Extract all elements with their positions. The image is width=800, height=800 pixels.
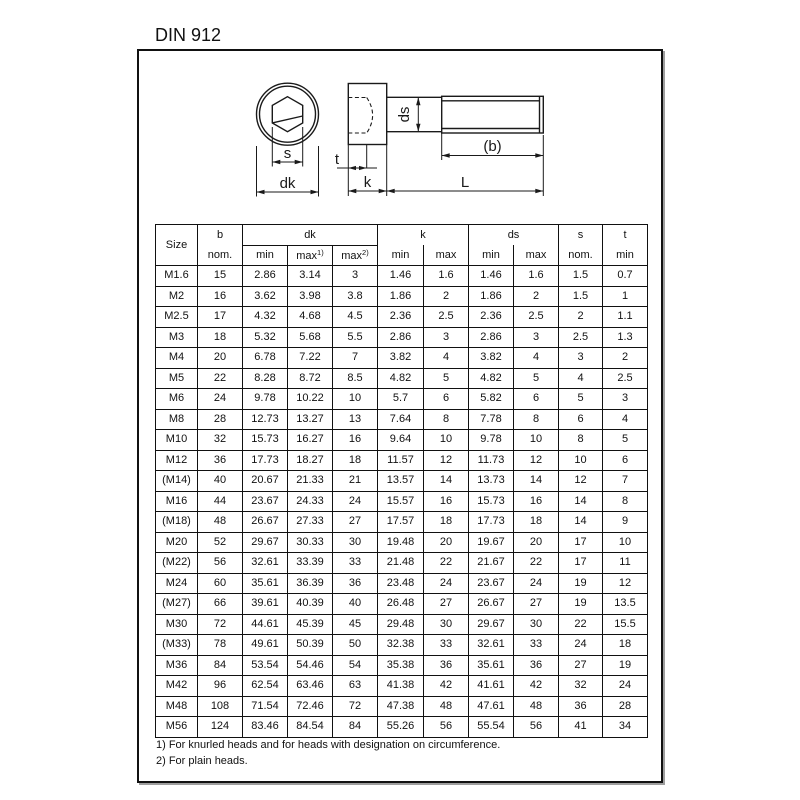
table-row: (M33)7849.6150.395032.383332.61332418: [156, 635, 648, 656]
table-cell: 1.46: [378, 266, 424, 287]
table-cell: 62.54: [243, 676, 288, 697]
table-cell: 32: [198, 430, 243, 451]
table-cell: M16: [156, 491, 198, 512]
col-header-dk: dk: [243, 225, 378, 246]
dim-label-k: k: [364, 174, 372, 191]
table-row: M164423.6724.332415.571615.7316148: [156, 491, 648, 512]
table-cell: 16: [333, 430, 378, 451]
table-cell: 1.86: [378, 286, 424, 307]
col-header-k: k: [378, 225, 469, 246]
table-cell: 63.46: [288, 676, 333, 697]
hex-socket-shape: [272, 97, 302, 132]
table-cell: 26.67: [243, 512, 288, 533]
table-cell: 1.3: [603, 327, 648, 348]
dim-label-L: L: [461, 174, 469, 191]
table-cell: 35.61: [243, 573, 288, 594]
table-cell: 2.5: [424, 307, 469, 328]
table-cell: 2.86: [378, 327, 424, 348]
table-cell: 3.82: [378, 348, 424, 369]
table-cell: 1.46: [469, 266, 514, 287]
table-cell: 8: [559, 430, 603, 451]
table-cell: 56: [514, 717, 559, 738]
table-cell: 27: [333, 512, 378, 533]
table-cell: 4.82: [378, 368, 424, 389]
col-header-dk-min: min: [243, 245, 288, 266]
table-cell: 60: [198, 573, 243, 594]
max1-sup: 1): [317, 248, 324, 257]
col-header-size: Size: [156, 225, 198, 266]
table-cell: 18: [333, 450, 378, 471]
table-cell: 12: [424, 450, 469, 471]
table-cell: 17.57: [378, 512, 424, 533]
table-cell: 3.98: [288, 286, 333, 307]
table-cell: 33: [333, 553, 378, 574]
table-row: M307244.6145.394529.483029.67302215.5: [156, 614, 648, 635]
table-cell: 108: [198, 696, 243, 717]
table-cell: 71.54: [243, 696, 288, 717]
table-cell: 2.36: [469, 307, 514, 328]
table-cell: 2: [559, 307, 603, 328]
table-cell: 3: [424, 327, 469, 348]
table-cell: 9.64: [378, 430, 424, 451]
col-header-s: snom.: [559, 225, 603, 266]
table-cell: 45.39: [288, 614, 333, 635]
table-cell: 36: [333, 573, 378, 594]
table-cell: M2.5: [156, 307, 198, 328]
table-cell: 24: [514, 573, 559, 594]
table-cell: 11.73: [469, 450, 514, 471]
table-row: M3185.325.685.52.8632.8632.51.3: [156, 327, 648, 348]
table-cell: 4.82: [469, 368, 514, 389]
table-cell: 19.48: [378, 532, 424, 553]
max2-sup: 2): [362, 248, 369, 257]
table-cell: 5.82: [469, 389, 514, 410]
table-cell: 1.86: [469, 286, 514, 307]
table-cell: M3: [156, 327, 198, 348]
table-cell: 17.73: [469, 512, 514, 533]
table-cell: 15: [198, 266, 243, 287]
screw-technical-drawing: s dk t k ds (b) L: [215, 58, 585, 208]
table-cell: 13.57: [378, 471, 424, 492]
table-cell: 30: [424, 614, 469, 635]
table-cell: 8.5: [333, 368, 378, 389]
table-cell: 2.5: [514, 307, 559, 328]
table-cell: 50: [333, 635, 378, 656]
table-row: (M18)4826.6727.332717.571817.7318149: [156, 512, 648, 533]
table-cell: M20: [156, 532, 198, 553]
table-cell: 5: [603, 430, 648, 451]
table-cell: (M27): [156, 594, 198, 615]
table-row: M103215.7316.27169.64109.781085: [156, 430, 648, 451]
table-cell: 42: [424, 676, 469, 697]
table-cell: M36: [156, 655, 198, 676]
table-row: M2.5174.324.684.52.362.52.362.521.1: [156, 307, 648, 328]
table-cell: 7.64: [378, 409, 424, 430]
table-cell: 72: [198, 614, 243, 635]
table-cell: 2.86: [243, 266, 288, 287]
table-cell: 6: [514, 389, 559, 410]
max2-label: max: [341, 250, 362, 262]
table-row: M5228.288.728.54.8254.82542.5: [156, 368, 648, 389]
thread-section: [442, 96, 544, 133]
table-cell: 39.61: [243, 594, 288, 615]
table-cell: 36: [198, 450, 243, 471]
table-cell: 11: [603, 553, 648, 574]
table-cell: 29.67: [243, 532, 288, 553]
col-header-b: bnom.: [198, 225, 243, 266]
table-cell: 47.61: [469, 696, 514, 717]
table-row: M82812.7313.27137.6487.78864: [156, 409, 648, 430]
table-cell: 35.38: [378, 655, 424, 676]
table-cell: 40.39: [288, 594, 333, 615]
table-cell: 21.48: [378, 553, 424, 574]
table-cell: 33.39: [288, 553, 333, 574]
col-header-t: tmin: [603, 225, 648, 266]
table-cell: 23.67: [243, 491, 288, 512]
table-cell: 72: [333, 696, 378, 717]
table-cell: 8: [424, 409, 469, 430]
footnotes: 1) For knurled heads and for heads with …: [156, 737, 500, 769]
table-cell: 9: [603, 512, 648, 533]
table-cell: 48: [514, 696, 559, 717]
table-cell: 17: [559, 553, 603, 574]
table-cell: 24: [559, 635, 603, 656]
table-cell: 20: [198, 348, 243, 369]
table-row: M368453.5454.465435.383635.61362719: [156, 655, 648, 676]
table-cell: 20.67: [243, 471, 288, 492]
table-cell: 30: [514, 614, 559, 635]
table-cell: 4: [559, 368, 603, 389]
table-cell: 27: [424, 594, 469, 615]
table-row: M2163.623.983.81.8621.8621.51: [156, 286, 648, 307]
table-cell: 17: [559, 532, 603, 553]
table-cell: 1.6: [424, 266, 469, 287]
table-cell: 14: [514, 471, 559, 492]
table-cell: 3: [333, 266, 378, 287]
max1-label: max: [296, 250, 317, 262]
hidden-socket-lines: [348, 98, 372, 134]
table-cell: 41.38: [378, 676, 424, 697]
table-cell: 22: [559, 614, 603, 635]
table-cell: 55.26: [378, 717, 424, 738]
table-cell: 4.5: [333, 307, 378, 328]
table-cell: 56: [198, 553, 243, 574]
table-cell: 23.67: [469, 573, 514, 594]
table-cell: 2: [603, 348, 648, 369]
table-cell: 10.22: [288, 389, 333, 410]
table-cell: 23.48: [378, 573, 424, 594]
table-cell: 3: [559, 348, 603, 369]
table-cell: 18.27: [288, 450, 333, 471]
col-header-ds: ds: [469, 225, 559, 246]
table-cell: 56: [424, 717, 469, 738]
dim-label-dk: dk: [280, 175, 296, 192]
col-header-dk-max2: max2): [333, 245, 378, 266]
table-cell: 6: [424, 389, 469, 410]
table-cell: 3: [514, 327, 559, 348]
table-cell: 15.73: [469, 491, 514, 512]
table-cell: 10: [603, 532, 648, 553]
table-cell: 10: [559, 450, 603, 471]
table-cell: 32.38: [378, 635, 424, 656]
table-cell: 2: [424, 286, 469, 307]
table-cell: 1.5: [559, 286, 603, 307]
table-row: M246035.6136.393623.482423.67241912: [156, 573, 648, 594]
table-cell: 12: [514, 450, 559, 471]
footnote-1: 1) For knurled heads and for heads with …: [156, 737, 500, 753]
spec-table-body: M1.6152.863.1431.461.61.461.61.50.7M2163…: [156, 266, 648, 738]
table-cell: 21: [333, 471, 378, 492]
table-cell: 33: [424, 635, 469, 656]
table-cell: M4: [156, 348, 198, 369]
table-cell: 33: [514, 635, 559, 656]
table-cell: 66: [198, 594, 243, 615]
table-cell: 1.1: [603, 307, 648, 328]
table-cell: M48: [156, 696, 198, 717]
table-cell: 36: [559, 696, 603, 717]
table-cell: 27: [559, 655, 603, 676]
table-row: (M14)4020.6721.332113.571413.7314127: [156, 471, 648, 492]
table-cell: 2.5: [559, 327, 603, 348]
table-cell: 18: [424, 512, 469, 533]
table-cell: 78: [198, 635, 243, 656]
table-cell: 47.38: [378, 696, 424, 717]
table-cell: 55.54: [469, 717, 514, 738]
table-cell: 8.72: [288, 368, 333, 389]
table-cell: 84.54: [288, 717, 333, 738]
table-cell: 1: [603, 286, 648, 307]
table-cell: 16.27: [288, 430, 333, 451]
table-cell: 84: [198, 655, 243, 676]
col-header-k-max: max: [424, 245, 469, 266]
table-cell: 44.61: [243, 614, 288, 635]
table-cell: 5.7: [378, 389, 424, 410]
table-cell: 19: [559, 573, 603, 594]
table-cell: 1.5: [559, 266, 603, 287]
col-header-s-label: s: [559, 225, 602, 245]
table-row: M123617.7318.271811.571211.7312106: [156, 450, 648, 471]
table-cell: 3.82: [469, 348, 514, 369]
table-cell: 16: [514, 491, 559, 512]
table-cell: 15.57: [378, 491, 424, 512]
table-cell: M8: [156, 409, 198, 430]
table-cell: M6: [156, 389, 198, 410]
table-cell: 36.39: [288, 573, 333, 594]
col-header-t-label: t: [603, 225, 647, 245]
table-cell: M56: [156, 717, 198, 738]
dim-label-ds: ds: [396, 107, 413, 123]
table-cell: 84: [333, 717, 378, 738]
table-cell: 14: [559, 491, 603, 512]
table-cell: 48: [198, 512, 243, 533]
table-cell: 26.48: [378, 594, 424, 615]
table-cell: M30: [156, 614, 198, 635]
table-cell: 3.8: [333, 286, 378, 307]
table-cell: 52: [198, 532, 243, 553]
col-header-ds-max: max: [514, 245, 559, 266]
table-cell: M42: [156, 676, 198, 697]
table-cell: 4: [424, 348, 469, 369]
table-cell: 27.33: [288, 512, 333, 533]
head-outer-circle: [257, 83, 319, 145]
table-cell: 14: [559, 512, 603, 533]
table-cell: 12: [603, 573, 648, 594]
table-cell: 28: [603, 696, 648, 717]
table-cell: 41: [559, 717, 603, 738]
table-cell: 28: [198, 409, 243, 430]
table-cell: 24: [198, 389, 243, 410]
table-cell: 9.78: [469, 430, 514, 451]
table-cell: 4.32: [243, 307, 288, 328]
table-cell: 50.39: [288, 635, 333, 656]
table-cell: 5.5: [333, 327, 378, 348]
col-header-b-label: b: [198, 225, 242, 245]
table-cell: 12.73: [243, 409, 288, 430]
table-cell: 22: [198, 368, 243, 389]
table-cell: 19: [603, 655, 648, 676]
table-cell: 19: [559, 594, 603, 615]
table-cell: 13.5: [603, 594, 648, 615]
table-cell: M5: [156, 368, 198, 389]
table-cell: 17: [198, 307, 243, 328]
col-header-b-sub: nom.: [198, 245, 242, 265]
table-cell: 24: [603, 676, 648, 697]
table-cell: 19.67: [469, 532, 514, 553]
table-cell: 29.67: [469, 614, 514, 635]
col-header-t-sub: min: [603, 245, 647, 265]
table-cell: 32.61: [469, 635, 514, 656]
table-cell: 2: [514, 286, 559, 307]
table-cell: 5.68: [288, 327, 333, 348]
table-cell: 27: [514, 594, 559, 615]
table-cell: 24: [424, 573, 469, 594]
table-cell: 3.14: [288, 266, 333, 287]
table-cell: 11.57: [378, 450, 424, 471]
table-row: M4810871.5472.467247.384847.61483628: [156, 696, 648, 717]
dim-label-b: (b): [483, 138, 501, 155]
table-cell: 26.67: [469, 594, 514, 615]
table-cell: 48: [424, 696, 469, 717]
table-cell: 63: [333, 676, 378, 697]
table-cell: 13.27: [288, 409, 333, 430]
table-cell: (M33): [156, 635, 198, 656]
table-cell: 13.73: [469, 471, 514, 492]
table-cell: 0.7: [603, 266, 648, 287]
hex-socket-chord: [272, 116, 302, 123]
col-header-ds-min: min: [469, 245, 514, 266]
table-cell: 32.61: [243, 553, 288, 574]
table-cell: 7.22: [288, 348, 333, 369]
table-cell: (M14): [156, 471, 198, 492]
table-cell: 96: [198, 676, 243, 697]
dimension-labels: s dk t k ds (b) L: [280, 107, 502, 192]
table-cell: 54.46: [288, 655, 333, 676]
table-header: Size bnom. dk k ds snom. tmin min max1) …: [156, 225, 648, 266]
table-cell: M24: [156, 573, 198, 594]
head-chamfer-circle: [260, 86, 316, 142]
table-cell: 18: [603, 635, 648, 656]
table-cell: 15.73: [243, 430, 288, 451]
table-cell: 2.36: [378, 307, 424, 328]
table-cell: 6: [559, 409, 603, 430]
table-cell: 9.78: [243, 389, 288, 410]
table-cell: 20: [424, 532, 469, 553]
table-cell: 36: [514, 655, 559, 676]
table-cell: 83.46: [243, 717, 288, 738]
table-cell: 18: [198, 327, 243, 348]
table-cell: 30.33: [288, 532, 333, 553]
table-cell: 20: [514, 532, 559, 553]
table-cell: 3.62: [243, 286, 288, 307]
table-cell: 16: [198, 286, 243, 307]
col-header-dk-max1: max1): [288, 245, 333, 266]
table-cell: 12: [559, 471, 603, 492]
table-cell: 5: [424, 368, 469, 389]
table-cell: 14: [424, 471, 469, 492]
table-cell: 124: [198, 717, 243, 738]
table-cell: 54: [333, 655, 378, 676]
table-cell: 21.67: [469, 553, 514, 574]
table-cell: 15.5: [603, 614, 648, 635]
table-cell: 53.54: [243, 655, 288, 676]
table-cell: 72.46: [288, 696, 333, 717]
din912-dimension-table: Size bnom. dk k ds snom. tmin min max1) …: [155, 224, 648, 738]
table-cell: 18: [514, 512, 559, 533]
table-cell: 4: [603, 409, 648, 430]
table-cell: 40: [333, 594, 378, 615]
col-header-k-min: min: [378, 245, 424, 266]
table-cell: 8: [514, 409, 559, 430]
dim-label-t: t: [335, 151, 340, 168]
table-cell: 1.6: [514, 266, 559, 287]
table-cell: 49.61: [243, 635, 288, 656]
table-cell: M2: [156, 286, 198, 307]
col-header-s-sub: nom.: [559, 245, 602, 265]
footnote-2: 2) For plain heads.: [156, 753, 500, 769]
table-cell: 21.33: [288, 471, 333, 492]
table-cell: 8.28: [243, 368, 288, 389]
table-cell: 10: [333, 389, 378, 410]
table-cell: 7: [333, 348, 378, 369]
table-cell: 16: [424, 491, 469, 512]
table-cell: 36: [424, 655, 469, 676]
table-cell: 22: [424, 553, 469, 574]
table-cell: 8: [603, 491, 648, 512]
table-cell: 2.5: [603, 368, 648, 389]
table-cell: 5.32: [243, 327, 288, 348]
table-cell: 10: [514, 430, 559, 451]
table-cell: 41.61: [469, 676, 514, 697]
table-cell: 4: [514, 348, 559, 369]
table-cell: 17.73: [243, 450, 288, 471]
table-cell: 4.68: [288, 307, 333, 328]
table-cell: 35.61: [469, 655, 514, 676]
table-cell: (M22): [156, 553, 198, 574]
table-cell: 24.33: [288, 491, 333, 512]
table-cell: 34: [603, 717, 648, 738]
table-cell: M12: [156, 450, 198, 471]
table-cell: 30: [333, 532, 378, 553]
table-cell: 2.86: [469, 327, 514, 348]
table-cell: 5: [514, 368, 559, 389]
table-row: M1.6152.863.1431.461.61.461.61.50.7: [156, 266, 648, 287]
table-row: M6249.7810.22105.765.82653: [156, 389, 648, 410]
table-cell: 7.78: [469, 409, 514, 430]
table-cell: 24: [333, 491, 378, 512]
table-cell: 42: [514, 676, 559, 697]
table-cell: 3: [603, 389, 648, 410]
table-cell: M1.6: [156, 266, 198, 287]
